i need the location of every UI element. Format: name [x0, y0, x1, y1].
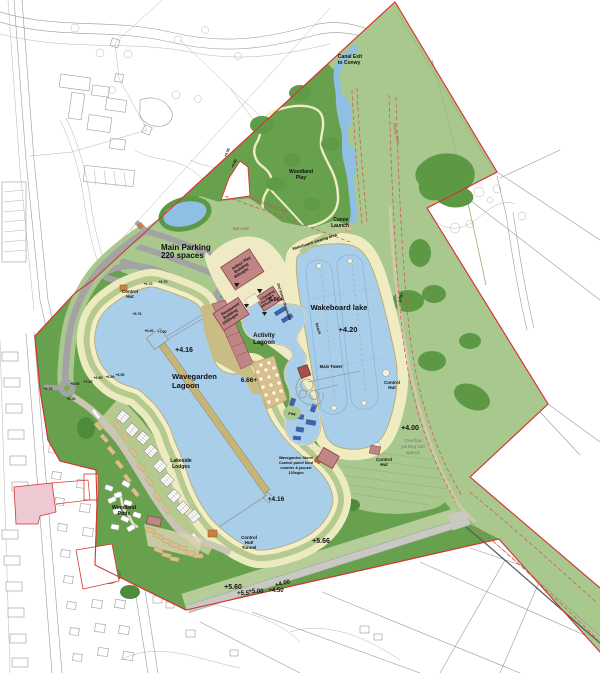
svg-text:counter & jacuzzi: counter & jacuzzi	[280, 466, 311, 470]
svg-text:+4.16: +4.16	[175, 347, 193, 354]
svg-text:Overflow: Overflow	[404, 438, 423, 443]
svg-text:120sq/m: 120sq/m	[288, 471, 304, 475]
svg-text:+6.90: +6.90	[93, 376, 102, 380]
svg-text:Hut: Hut	[388, 385, 396, 390]
svg-text:+7.00: +7.00	[83, 380, 92, 384]
svg-text:+5.66: +5.66	[312, 538, 330, 545]
svg-text:+4.00: +4.00	[401, 425, 419, 432]
svg-text:Hut: Hut	[126, 294, 134, 299]
svg-text:Control point/ food: Control point/ food	[279, 461, 314, 465]
svg-text:Tunnel: Tunnel	[242, 545, 256, 550]
svg-text:6.66+: 6.66+	[241, 377, 258, 384]
svg-text:parking 150: parking 150	[401, 444, 425, 449]
svg-text:+6.00: +6.00	[66, 397, 75, 401]
svg-text:Play: Play	[296, 175, 307, 181]
svg-text:Lagoon: Lagoon	[253, 340, 275, 346]
svg-text:Bat cave: Bat cave	[233, 226, 250, 231]
svg-text:to Conwy: to Conwy	[338, 60, 361, 66]
svg-text:+5.60: +5.60	[224, 584, 242, 591]
svg-text:Launch: Launch	[331, 223, 349, 229]
svg-text:+6.00: +6.00	[144, 329, 153, 333]
svg-text:+6.76: +6.76	[43, 387, 52, 391]
svg-text:Lodges: Lodges	[172, 464, 190, 470]
svg-text:+6.90: +6.90	[105, 375, 114, 379]
svg-text:Pods: Pods	[118, 511, 130, 517]
svg-text:220 spaces: 220 spaces	[161, 251, 204, 260]
svg-text:+7.00: +7.00	[157, 330, 166, 334]
svg-text:Play: Play	[288, 412, 295, 416]
svg-text:Hut: Hut	[380, 462, 388, 467]
svg-text:Wavegarden: Wavegarden	[172, 372, 217, 381]
svg-text:+6.70: +6.70	[143, 282, 152, 286]
svg-text:+4.50: +4.50	[268, 588, 284, 594]
svg-text:+4.16: +4.16	[268, 496, 285, 503]
svg-text:Wakeboard lake: Wakeboard lake	[311, 303, 368, 312]
svg-text:Wavegarden Store/: Wavegarden Store/	[279, 456, 314, 460]
svg-text:Main Tower: Main Tower	[320, 364, 343, 369]
svg-text:+8.00: +8.00	[70, 382, 79, 386]
svg-text:+5.00: +5.00	[248, 589, 264, 595]
svg-text:+6.50: +6.50	[115, 373, 124, 377]
svg-text:+6.70: +6.70	[158, 280, 167, 284]
svg-text:Lagoon: Lagoon	[172, 381, 200, 390]
svg-text:spaces: spaces	[406, 450, 421, 455]
svg-text:+6.76: +6.76	[132, 312, 141, 316]
svg-text:+4.20: +4.20	[339, 325, 358, 334]
svg-text:Activity: Activity	[253, 333, 275, 339]
